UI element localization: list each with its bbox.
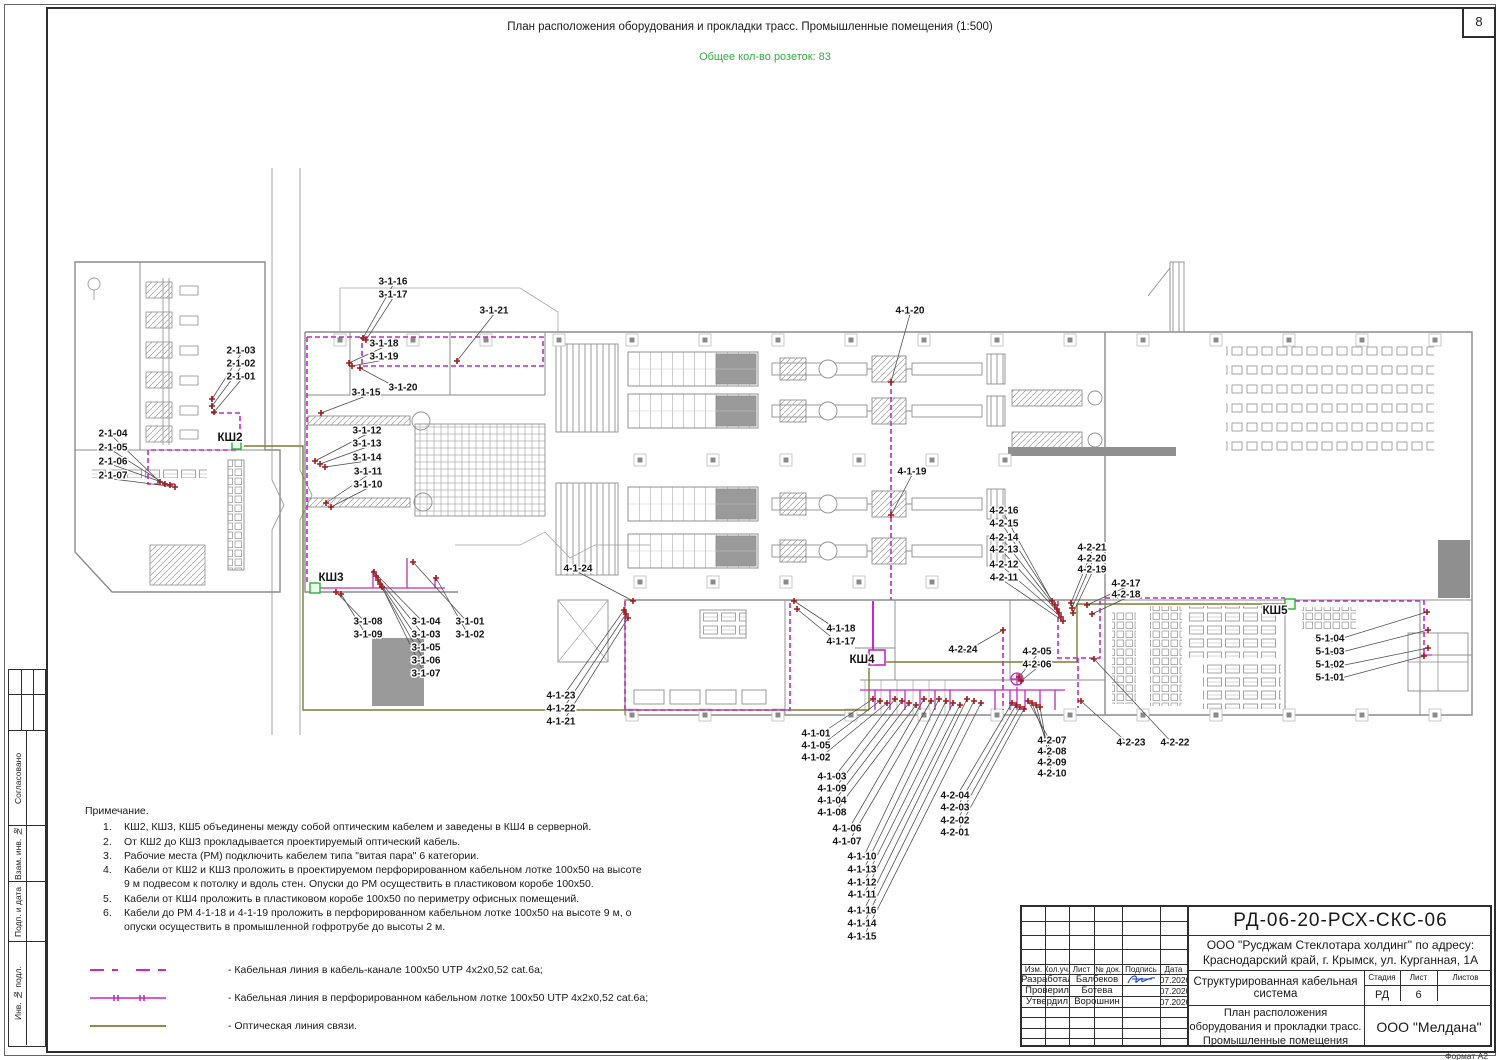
col-koluch: Кол.уч. bbox=[1045, 964, 1069, 974]
date-approver: 07.2020 bbox=[1160, 996, 1187, 1007]
signature-scribble bbox=[1124, 972, 1158, 986]
drawing-title: План расположения оборудования и проклад… bbox=[507, 21, 993, 33]
stage-label: Стадия bbox=[1364, 970, 1400, 985]
stamp-grid-line bbox=[1022, 1017, 1187, 1018]
legend-item-cable-channel: - Кабельная линия в кабель-канале 100х50… bbox=[88, 956, 648, 984]
margin-cell-podp: Подп. и дата bbox=[9, 881, 45, 941]
name-approver: Ворошнин bbox=[1069, 996, 1122, 1007]
col-izm: Изм. bbox=[1022, 964, 1045, 974]
note-item: 3.Рабочие места (РМ) подключить кабелем … bbox=[85, 849, 647, 863]
legend-item-cable-tray: - Кабельная линия в перфорированном кабе… bbox=[88, 984, 648, 1012]
margin-cell-soglasovano: Согласовано bbox=[9, 730, 45, 825]
margin-cell-vzam: Взам. инв. № bbox=[9, 825, 45, 881]
tray-cable-line-sample bbox=[88, 992, 168, 1004]
date-developer: 07.2020 bbox=[1160, 974, 1187, 985]
system-name: Структурированная кабельная система bbox=[1187, 970, 1364, 1005]
margin-grid-cell bbox=[9, 694, 45, 730]
role-approver: Утвердил bbox=[1022, 996, 1069, 1007]
stamp-grid-line bbox=[1022, 949, 1187, 950]
note-item: 6.Кабели до РМ 4-1-18 и 4-1-19 проложить… bbox=[85, 906, 647, 935]
margin-cell-inv: Инв. № подл. bbox=[9, 941, 45, 1045]
stamp-grid-line bbox=[1022, 935, 1187, 936]
dashed-cable-line-sample bbox=[88, 965, 168, 975]
col-list: Лист bbox=[1069, 964, 1094, 974]
doc-number: РД-06-20-РСХ-СКС-06 bbox=[1187, 907, 1494, 935]
stamp-grid-line bbox=[1022, 1038, 1187, 1039]
margin-grid-cell bbox=[9, 670, 45, 694]
name-checker: Ботева bbox=[1069, 985, 1122, 996]
name-developer: Балбеков bbox=[1069, 974, 1122, 985]
stage-value: РД bbox=[1364, 985, 1400, 1005]
optic-line-sample bbox=[88, 1021, 168, 1031]
sockets-count-note: Общее кол-во розеток: 83 bbox=[699, 51, 831, 63]
note-item: 5.Кабели от КШ4 проложить в пластиковом … bbox=[85, 892, 647, 906]
role-checker: Проверил bbox=[1022, 985, 1069, 996]
sheet-label: Лист bbox=[1400, 970, 1437, 985]
legend-item-optic: - Оптическая линия связи. bbox=[88, 1012, 648, 1040]
margin-table: Согласовано Взам. инв. № Подп. и дата Ин… bbox=[8, 669, 46, 1047]
date-checker: 07.2020 bbox=[1160, 985, 1187, 996]
role-developer: Разработал bbox=[1022, 974, 1069, 985]
org-name: ООО "Мелдана" bbox=[1364, 1005, 1494, 1049]
page-number: 8 bbox=[1462, 8, 1494, 38]
sheets-value bbox=[1437, 985, 1494, 1005]
stamp-grid-line bbox=[1022, 921, 1187, 922]
sheet-value: 6 bbox=[1400, 985, 1437, 1005]
format-label: Формат А2 bbox=[1408, 1051, 1488, 1060]
notes-title: Примечание. bbox=[85, 804, 647, 818]
col-data: Дата bbox=[1160, 964, 1187, 974]
stamp-grid-line bbox=[1022, 1007, 1187, 1008]
note-item: 1.КШ2, КШ3, КШ5 объединены между собой о… bbox=[85, 820, 647, 834]
note-item: 2.От КШ2 до КШ3 прокладывается проектиру… bbox=[85, 835, 647, 849]
note-item: 4.Кабели от КШ2 и КШ3 проложить в проект… bbox=[85, 863, 647, 892]
drawing-sheet: 2-1-032-1-022-1-012-1-042-1-052-1-062-1-… bbox=[0, 0, 1500, 1060]
notes-block: Примечание. 1.КШ2, КШ3, КШ5 объединены м… bbox=[85, 804, 647, 934]
stamp-plan-title: План расположенияоборудования и прокладк… bbox=[1187, 1005, 1364, 1049]
title-block: РД-06-20-РСХ-СКС-06 ООО "Русджам Стеклот… bbox=[1020, 905, 1492, 1047]
sheets-label: Листов bbox=[1437, 970, 1494, 985]
legend: - Кабельная линия в кабель-канале 100х50… bbox=[88, 956, 648, 1040]
company-address: ООО "Русджам Стеклотара холдинг" по адре… bbox=[1187, 935, 1494, 970]
stamp-grid-line bbox=[1022, 1028, 1187, 1029]
col-dok: № док. bbox=[1094, 964, 1122, 974]
signature bbox=[1122, 972, 1160, 986]
